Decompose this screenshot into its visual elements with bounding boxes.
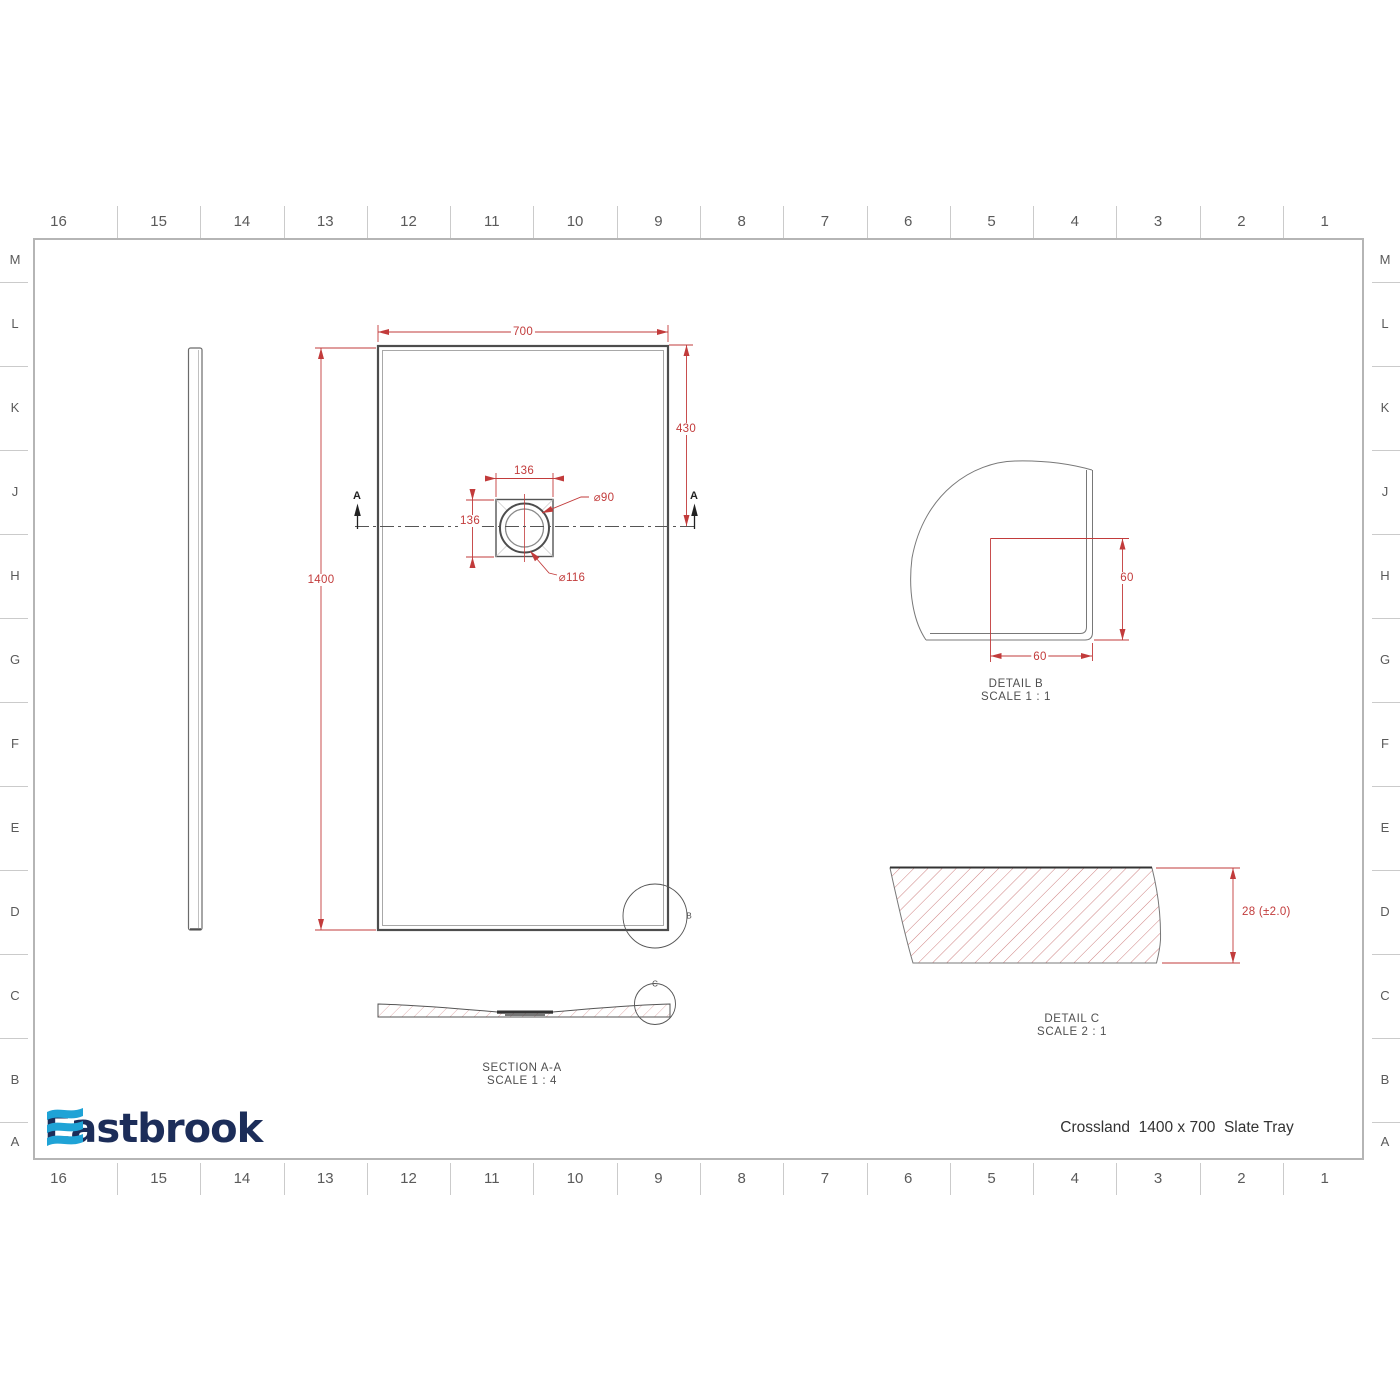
detail-b-view xyxy=(911,461,1129,662)
section-aa-label: SECTION A-A xyxy=(482,1062,561,1074)
plan-width-dimension: 700 xyxy=(511,326,535,338)
detail-c-scale: SCALE 2 : 1 xyxy=(1037,1026,1107,1038)
detail-c-thickness-dimension: 28 (±2.0) xyxy=(1242,906,1291,918)
plan-height-dimension: 1400 xyxy=(306,574,337,586)
section-aa-view xyxy=(378,984,676,1025)
drain-plan xyxy=(496,494,553,562)
drain-box-height-dimension: 136 xyxy=(458,515,482,527)
detail-b-height-dimension: 60 xyxy=(1118,572,1135,584)
section-aa-scale: SCALE 1 : 4 xyxy=(487,1075,557,1087)
detail-c-marker-letter: C xyxy=(652,980,658,989)
drain-outer-diameter-label: ⌀116 xyxy=(559,570,585,584)
drawing-sheet: 1616151514141313121211111010998877665544… xyxy=(0,0,1400,1400)
detail-b-marker-letter: B xyxy=(686,912,691,921)
detail-c-label: DETAIL C xyxy=(1044,1013,1099,1025)
drawing-title: Crossland 1400 x 700 Slate Tray xyxy=(1060,1119,1294,1137)
detail-c-dimensions xyxy=(1156,868,1240,963)
detail-c-view xyxy=(890,868,1240,964)
detail-b-label: DETAIL B xyxy=(989,678,1044,690)
drain-inner-diameter-label: ⌀90 xyxy=(594,490,615,504)
detail-b-scale: SCALE 1 : 1 xyxy=(981,691,1051,703)
section-arrow-right xyxy=(691,504,698,530)
detail-b-dimensions xyxy=(991,539,1130,663)
eastbrook-waves-icon xyxy=(44,1104,86,1150)
plan-view xyxy=(315,325,698,948)
section-marker-a-left: A xyxy=(353,490,361,502)
section-marker-a-right: A xyxy=(690,490,698,502)
eastbrook-logo: Eastbrook xyxy=(44,1104,262,1154)
section-arrow-left xyxy=(354,504,361,530)
cad-linework xyxy=(0,0,1400,1400)
drain-box-width-dimension: 136 xyxy=(512,465,536,477)
detail-b-width-dimension: 60 xyxy=(1031,651,1048,663)
plan-drain-offset-dimension: 430 xyxy=(674,423,698,435)
side-elevation-view xyxy=(189,348,203,930)
